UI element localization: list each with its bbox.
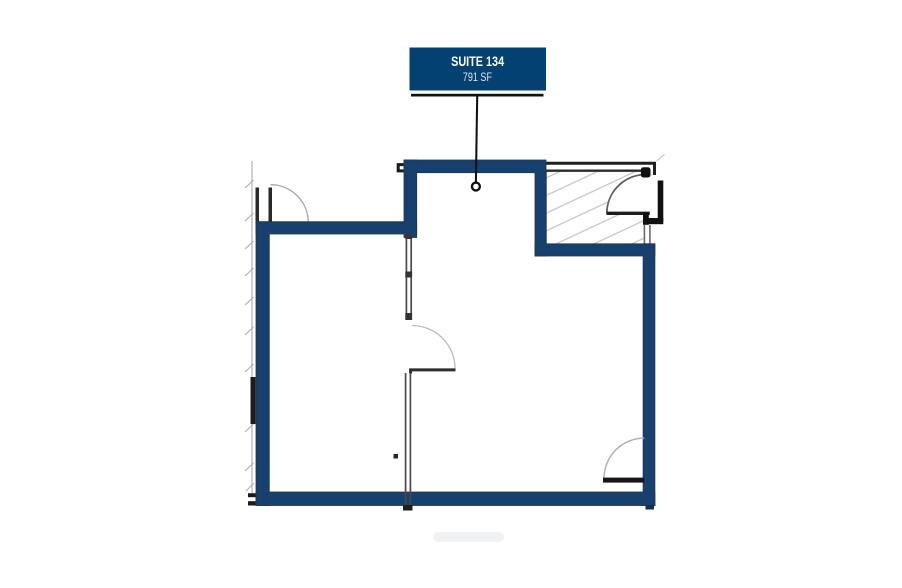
svg-text:SUITE 134: SUITE 134	[451, 53, 504, 69]
svg-text:791 SF: 791 SF	[463, 72, 492, 84]
